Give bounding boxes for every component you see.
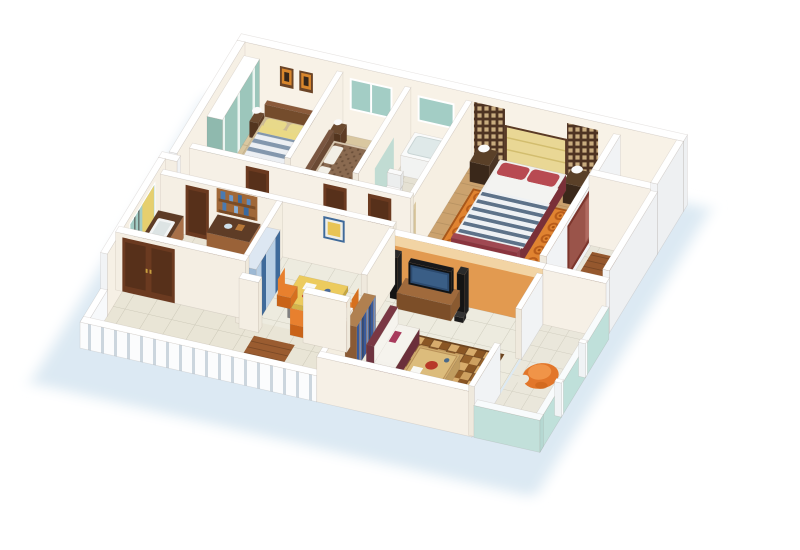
- apartment-floorplan: [30, 34, 710, 498]
- glass-railing-post-a: [579, 339, 588, 378]
- floorplan-canvas: [0, 0, 800, 550]
- glass-railing-post-b: [555, 378, 564, 417]
- dining-south-wall-b: [303, 287, 350, 353]
- dining-chair-3-back: [290, 308, 304, 327]
- art-frame-1: [280, 66, 294, 89]
- art-frame-2: [299, 70, 313, 93]
- media-box: [454, 311, 466, 323]
- dining-south-wall-a: [239, 272, 262, 332]
- kitchen-door: [186, 185, 209, 240]
- toilet-tank: [387, 168, 403, 188]
- floorplan-figure: [0, 0, 800, 550]
